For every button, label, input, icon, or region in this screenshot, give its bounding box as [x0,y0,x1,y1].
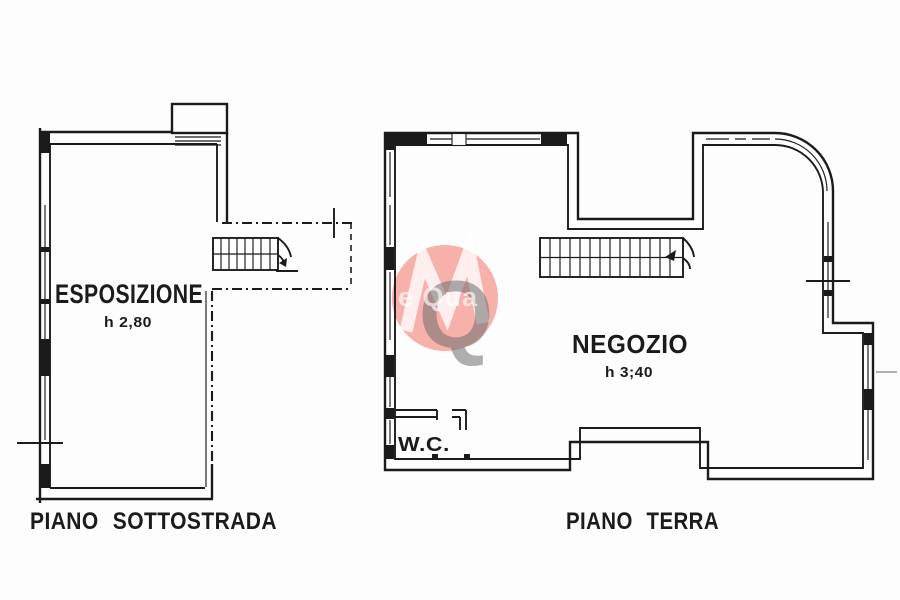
wall-block [386,408,394,419]
wall-block [824,256,832,262]
stairs-left [213,238,298,271]
watermark-q-letter: Q [419,261,494,368]
floorplan-canvas: Q e Qua [0,0,900,600]
top-wall-mullion [452,134,466,146]
wall-block [864,333,872,345]
wall-block [824,290,832,296]
wall-protrusion [172,104,227,133]
wall-block [386,133,394,150]
room-height-esposizione: h 2,80 [104,314,152,331]
room-label-wc: W.C. [398,434,450,456]
wall-block [41,132,50,153]
watermark-logo: Q e Qua [392,245,498,368]
wall-block [541,134,567,144]
wall-block [386,247,394,270]
stairs-right [540,238,694,277]
room-label-negozio: NEGOZIO [572,329,688,359]
wall-block [41,247,50,252]
wall-block [386,445,394,459]
wc-threshold [464,454,470,460]
wall-block [864,389,872,410]
watermark-overlay-text: e Qua [398,282,478,312]
wall-block [41,464,50,488]
wc-room: W.C. [395,410,470,460]
floorplan-drawing: Q e Qua [0,0,900,600]
wc-walls [395,410,466,430]
wall-block [386,355,394,377]
wall-block [41,339,50,376]
floor-label-terra: PIANO TERRA [566,508,719,535]
wall-block [41,299,50,304]
plan-sottostrada: ESPOSIZIONE h 2,80 PIANO SOTTOSTRADA [17,104,352,535]
floor-label-sottostrada: PIANO SOTTOSTRADA [30,508,277,535]
room-label-esposizione: ESPOSIZIONE [55,279,203,309]
curve-window-line [775,139,827,191]
room-height-negozio: h 3;40 [605,364,653,381]
